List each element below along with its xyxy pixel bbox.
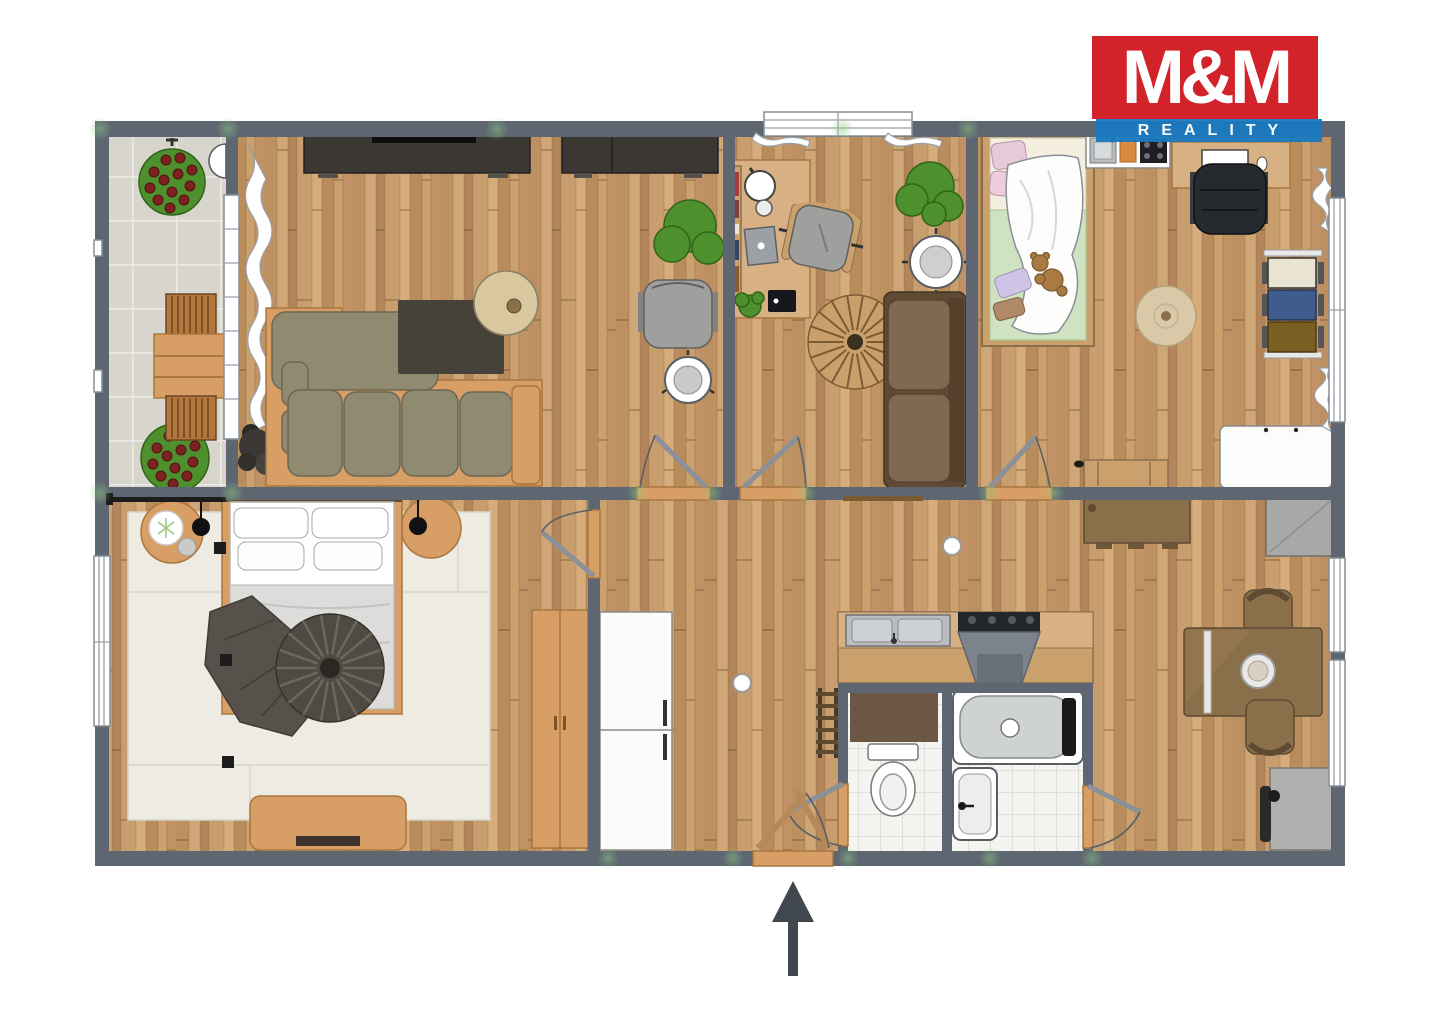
- terrace-folding-chair-top: [166, 294, 216, 336]
- tablet: [768, 290, 796, 312]
- cabinet-corner-bottom: [1260, 768, 1338, 850]
- terrace-table: [154, 334, 226, 398]
- kids-shelf-boxes: [1262, 250, 1324, 358]
- kids-round-rug: [1136, 286, 1196, 346]
- kitchen-sink: [846, 615, 950, 646]
- window-dining-right-upper: [1329, 558, 1345, 652]
- rug-spiral-master: [276, 614, 384, 722]
- tv-screen: [372, 137, 476, 143]
- kitchen-island: [1084, 497, 1190, 549]
- sofa-office: [884, 292, 966, 488]
- ceiling-light-corridor: [943, 537, 961, 555]
- ceiling-light-hall: [733, 674, 751, 692]
- window-dining-right-lower: [1329, 660, 1345, 786]
- table-runner: [1204, 631, 1211, 713]
- bathtub: [953, 690, 1083, 764]
- kids-bench: [1074, 460, 1168, 488]
- logo-mm-text: M&M: [1122, 36, 1289, 119]
- laptop: [744, 226, 778, 265]
- north-arrow-icon: [772, 881, 814, 976]
- kids-desk-chair: [1190, 164, 1268, 234]
- kitchen-wall-rail: [843, 496, 923, 501]
- logo-reality-text: REALITY: [1128, 119, 1290, 142]
- bedside-lamp-left: [192, 518, 210, 536]
- sideboard-right: [562, 133, 718, 178]
- curtain-rail-bedroom: [110, 497, 226, 502]
- toilet-mat: [850, 692, 938, 742]
- toy: [1074, 461, 1084, 468]
- kitchen-counter: [838, 612, 1093, 683]
- window-kids-right: [1329, 198, 1345, 422]
- logo-reality-banner: REALITY: [1096, 119, 1322, 142]
- terrace-folding-chair-bottom: [166, 396, 216, 440]
- armchair-living: [638, 280, 718, 348]
- floorplan-page: M&M REALITY: [0, 0, 1440, 1018]
- cabinet-corner-top: [1266, 494, 1338, 556]
- floorplan-drawing: [0, 0, 1440, 1018]
- french-window-terrace: [224, 195, 239, 439]
- wardrobe-bedroom: [532, 610, 588, 848]
- hall-closet-white: [600, 612, 672, 850]
- kids-bed: [982, 132, 1094, 346]
- dining-chair-bottom: [1246, 700, 1294, 754]
- bedside-lamp-right: [409, 517, 427, 535]
- kids-white-table: [1220, 426, 1332, 488]
- window-terrace-tick-1: [94, 240, 102, 256]
- bathroom-sink: [953, 768, 997, 840]
- window-terrace-tick-2: [94, 370, 102, 392]
- mm-reality-logo: M&M REALITY: [1092, 36, 1322, 142]
- bedroom-bench: [250, 796, 406, 850]
- logo-mm-block: M&M: [1092, 36, 1318, 119]
- floor-lamp-living: [474, 271, 538, 335]
- bath-tap: [1062, 698, 1076, 756]
- window-bedroom-left: [94, 556, 110, 726]
- nightstand-right: [401, 498, 461, 558]
- toilet: [868, 744, 918, 816]
